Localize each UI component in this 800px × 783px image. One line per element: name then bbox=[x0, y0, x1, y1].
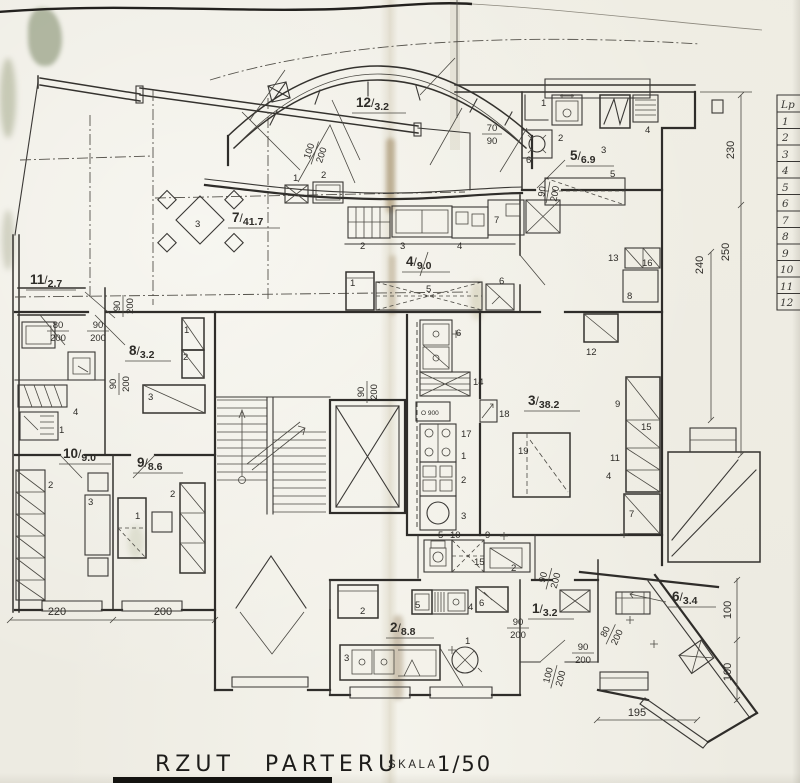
svg-text:4: 4 bbox=[457, 241, 462, 252]
room5-walls bbox=[455, 79, 723, 565]
svg-text:19: 19 bbox=[518, 446, 529, 457]
svg-text:3: 3 bbox=[148, 392, 153, 403]
scanned-floor-plan: 12/3.2 7/41.7 5/6.9 4/9.0 11/2.7 8/3.2 3… bbox=[0, 0, 800, 783]
svg-text:4: 4 bbox=[645, 125, 650, 136]
room2 bbox=[330, 580, 520, 698]
svg-text:1: 1 bbox=[293, 173, 298, 184]
room-area: 41.7 bbox=[243, 216, 264, 228]
room-label-4: 4/9.0 bbox=[402, 252, 450, 276]
svg-text:6: 6 bbox=[499, 276, 504, 287]
legend-row: 8 bbox=[782, 231, 789, 243]
scan-black-bar bbox=[113, 777, 332, 783]
rooms-9-10-furniture bbox=[16, 470, 205, 600]
svg-text:200: 200 bbox=[575, 655, 591, 666]
svg-text:5/6.9: 5/6.9 bbox=[570, 148, 596, 166]
svg-text:1: 1 bbox=[541, 98, 546, 109]
room-label-5: 5/6.9 bbox=[566, 148, 614, 166]
room-label-12: 12/3.2 bbox=[352, 95, 406, 113]
drawing-title: RZUT PARTERU bbox=[155, 752, 399, 777]
corridor-cabinets bbox=[520, 195, 660, 312]
floor-plan-svg: 12/3.2 7/41.7 5/6.9 4/9.0 11/2.7 8/3.2 3… bbox=[0, 0, 800, 783]
svg-text:4: 4 bbox=[606, 471, 611, 482]
svg-text:15: 15 bbox=[641, 422, 652, 433]
svg-text:2/8.8: 2/8.8 bbox=[390, 620, 416, 638]
svg-text:2: 2 bbox=[461, 475, 466, 486]
svg-text:3: 3 bbox=[88, 497, 93, 508]
svg-text:2: 2 bbox=[48, 480, 53, 491]
svg-text:1/3.2: 1/3.2 bbox=[532, 601, 558, 619]
svg-text:90: 90 bbox=[108, 379, 119, 390]
legend-row: 11 bbox=[780, 281, 793, 293]
terrace-walls bbox=[13, 76, 470, 612]
svg-text:6: 6 bbox=[456, 328, 461, 339]
svg-text:13: 13 bbox=[608, 253, 619, 264]
svg-text:200: 200 bbox=[554, 670, 569, 688]
linear-dim-100: 100 bbox=[722, 601, 734, 619]
linear-dim-220: 220 bbox=[48, 606, 66, 618]
room-number: 9 bbox=[137, 455, 145, 470]
legend-header: Lp bbox=[780, 99, 795, 111]
svg-text:1: 1 bbox=[135, 511, 140, 522]
svg-text:14: 14 bbox=[473, 377, 484, 388]
svg-text:200: 200 bbox=[90, 333, 106, 344]
room-area: 9.0 bbox=[417, 260, 432, 272]
svg-text:6: 6 bbox=[526, 155, 531, 166]
svg-text:3/38.2: 3/38.2 bbox=[528, 393, 559, 411]
room-area: 2.7 bbox=[48, 278, 63, 290]
room-number: 12 bbox=[356, 95, 371, 110]
svg-text:2: 2 bbox=[183, 352, 188, 363]
svg-text:8/3.2: 8/3.2 bbox=[129, 343, 155, 361]
door-dim-80-200: 80200 bbox=[596, 620, 627, 650]
svg-text:3: 3 bbox=[461, 511, 466, 522]
legend-row: 12 bbox=[780, 297, 794, 309]
svg-text:90: 90 bbox=[356, 387, 367, 398]
svg-text:18: 18 bbox=[499, 409, 510, 420]
room-area: 3.2 bbox=[374, 101, 389, 113]
room-label-6: 6/3.4 bbox=[668, 589, 716, 607]
svg-text:2: 2 bbox=[321, 170, 326, 181]
svg-text:90: 90 bbox=[513, 617, 524, 628]
room-area: 9.0 bbox=[81, 452, 96, 464]
dining-table bbox=[158, 191, 243, 252]
svg-text:2: 2 bbox=[360, 606, 365, 617]
svg-text:4/9.0: 4/9.0 bbox=[406, 254, 432, 272]
linear-dim-195: 195 bbox=[628, 707, 646, 719]
svg-text:9: 9 bbox=[615, 399, 620, 410]
room-number: 11 bbox=[30, 272, 45, 287]
svg-text:5: 5 bbox=[426, 284, 431, 295]
room-area: 6.9 bbox=[581, 154, 596, 166]
svg-text:200: 200 bbox=[549, 572, 564, 590]
svg-text:16: 16 bbox=[642, 258, 653, 269]
room-area: 3.2 bbox=[543, 607, 558, 619]
svg-text:200: 200 bbox=[125, 298, 136, 314]
svg-text:4: 4 bbox=[73, 407, 78, 418]
svg-text:2: 2 bbox=[511, 563, 516, 574]
svg-text:200: 200 bbox=[510, 630, 526, 641]
svg-text:1: 1 bbox=[350, 278, 355, 289]
svg-text:3: 3 bbox=[601, 145, 606, 156]
svg-text:3: 3 bbox=[195, 219, 200, 230]
stair-hall bbox=[215, 312, 407, 690]
svg-text:1: 1 bbox=[59, 425, 64, 436]
room6 bbox=[580, 572, 757, 748]
svg-text:12: 12 bbox=[586, 347, 597, 358]
room-area: 3.2 bbox=[140, 349, 155, 361]
door-dim-100-200: 100200 bbox=[540, 662, 569, 691]
linear-dim-100: 100 bbox=[722, 663, 734, 681]
curved-bay bbox=[228, 58, 532, 172]
room-number: 7 bbox=[232, 210, 240, 225]
svg-text:5: 5 bbox=[438, 530, 443, 541]
right-annex bbox=[668, 428, 760, 562]
door-dim-90-200: 90200 bbox=[572, 642, 594, 666]
svg-text:2: 2 bbox=[170, 489, 175, 500]
room-area: 8.6 bbox=[148, 461, 163, 473]
svg-text:200: 200 bbox=[121, 376, 132, 392]
kitchen-strip bbox=[416, 312, 497, 535]
svg-text:3: 3 bbox=[344, 653, 349, 664]
door-dim-100-200: 100200 bbox=[301, 138, 331, 168]
room-area: 38.2 bbox=[539, 399, 560, 411]
svg-text:5: 5 bbox=[415, 600, 420, 611]
svg-text:1: 1 bbox=[465, 636, 470, 647]
svg-text:90: 90 bbox=[487, 136, 498, 147]
svg-text:90: 90 bbox=[93, 320, 104, 331]
svg-text:12/3.2: 12/3.2 bbox=[356, 95, 389, 113]
linear-dim-240: 240 bbox=[694, 256, 706, 274]
room-area: 3.4 bbox=[683, 595, 698, 607]
scale-label: SKALA bbox=[388, 759, 438, 771]
svg-text:90: 90 bbox=[112, 301, 123, 312]
title-block: RZUT PARTERU SKALA 1/50 bbox=[155, 752, 492, 777]
room-label-3: 3/38.2 bbox=[524, 393, 580, 411]
dim-line-bottom-left bbox=[7, 617, 218, 623]
legend-row: 3 bbox=[782, 149, 789, 161]
legend-row: 2 bbox=[781, 132, 789, 144]
door-dim-90-200: 90200 bbox=[112, 295, 136, 317]
legend-row: 4 bbox=[781, 165, 789, 177]
svg-text:90: 90 bbox=[578, 642, 589, 653]
scale-value: 1/50 bbox=[437, 752, 492, 776]
svg-text:5: 5 bbox=[610, 169, 615, 180]
linear-dim-200: 200 bbox=[154, 606, 172, 618]
linear-dim-230: 230 bbox=[725, 141, 737, 159]
door-dim-90-200: 90200 bbox=[535, 180, 562, 206]
svg-text:10/9.0: 10/9.0 bbox=[63, 446, 96, 464]
room-label-8: 8/3.2 bbox=[125, 343, 171, 361]
room-label-7: 7/41.7 bbox=[228, 210, 280, 228]
door-dim-90-200: 90200 bbox=[507, 617, 529, 641]
room-label-2: 2/8.8 bbox=[386, 620, 434, 638]
room-number: 2 bbox=[390, 620, 398, 635]
svg-text:7: 7 bbox=[629, 509, 634, 520]
svg-text:80: 80 bbox=[53, 320, 64, 331]
svg-text:1: 1 bbox=[184, 325, 189, 336]
legend-row: 5 bbox=[782, 182, 789, 194]
svg-text:4: 4 bbox=[468, 602, 473, 613]
legend-row: 1 bbox=[782, 116, 789, 128]
svg-text:6: 6 bbox=[479, 598, 484, 609]
legend-row: 7 bbox=[782, 215, 789, 227]
svg-text:11: 11 bbox=[610, 453, 620, 464]
svg-text:17: 17 bbox=[461, 429, 472, 440]
svg-text:9: 9 bbox=[485, 530, 490, 541]
legend-row: 10 bbox=[780, 264, 794, 276]
legend-row: 9 bbox=[782, 248, 789, 260]
room-number: 10 bbox=[63, 446, 78, 461]
svg-text:200: 200 bbox=[50, 333, 66, 344]
svg-text:10: 10 bbox=[450, 530, 461, 541]
svg-text:70: 70 bbox=[487, 123, 498, 134]
svg-text:7/41.7: 7/41.7 bbox=[232, 210, 263, 228]
niche-row bbox=[330, 530, 662, 580]
linear-dim-250: 250 bbox=[720, 243, 732, 261]
room4-furniture bbox=[345, 244, 515, 310]
door-dim-80-200: 80200 bbox=[47, 320, 69, 344]
door-dim-90-200: 90200 bbox=[108, 373, 132, 395]
svg-text:15: 15 bbox=[474, 557, 485, 568]
svg-text:1: 1 bbox=[461, 451, 466, 462]
svg-text:2: 2 bbox=[360, 241, 365, 252]
svg-text:8: 8 bbox=[627, 291, 632, 302]
legend-row: 6 bbox=[782, 198, 789, 210]
room-area: 8.8 bbox=[401, 626, 416, 638]
svg-text:O 900: O 900 bbox=[421, 410, 439, 417]
svg-text:7: 7 bbox=[494, 215, 499, 226]
legend-table: Lp 1 2 3 4 5 6 7 8 9 10 11 12 bbox=[777, 95, 800, 310]
svg-text:2: 2 bbox=[558, 133, 563, 144]
svg-text:200: 200 bbox=[369, 384, 380, 400]
svg-text:3: 3 bbox=[400, 241, 405, 252]
room-label-1: 1/3.2 bbox=[528, 601, 574, 619]
